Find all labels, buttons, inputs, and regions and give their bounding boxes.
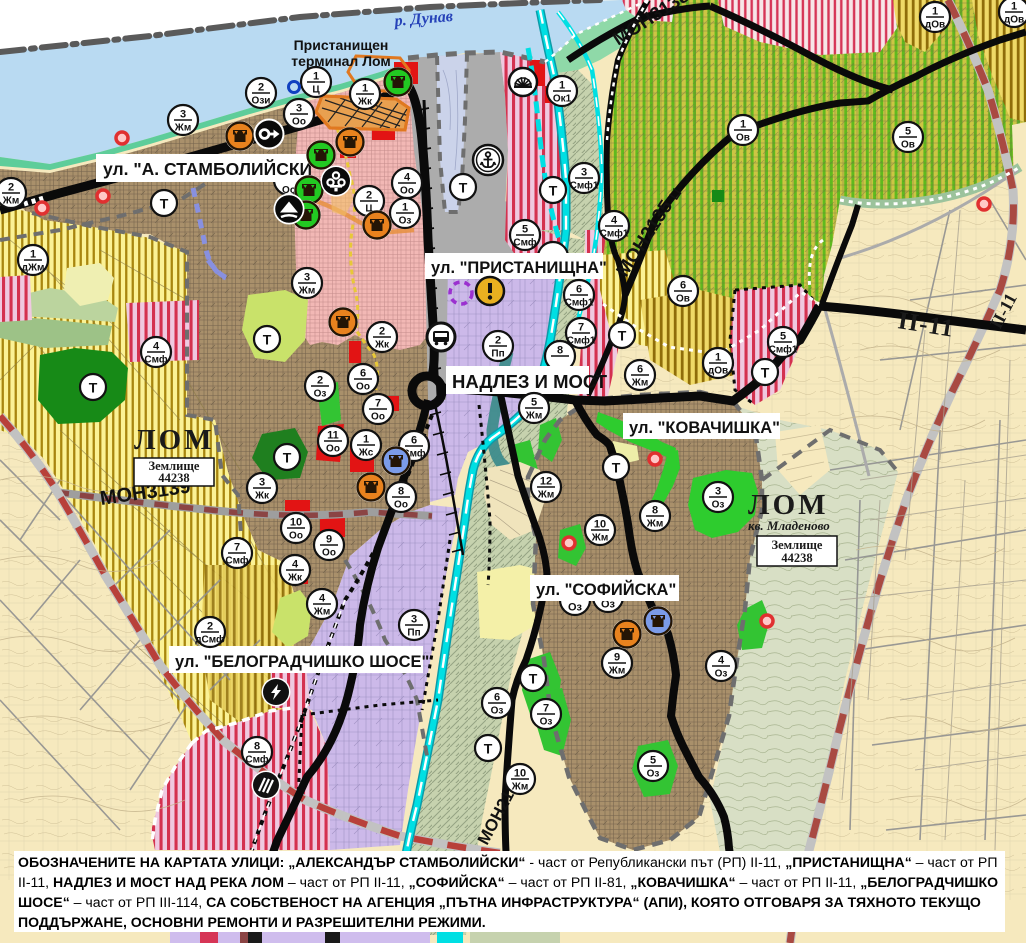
svg-text:3: 3 [259, 477, 265, 489]
svg-text:Жм: Жм [591, 533, 608, 544]
svg-text:Жм: Жм [2, 196, 19, 207]
svg-text:терминал Лом: терминал Лом [291, 53, 391, 69]
svg-text:Смф1: Смф1 [565, 297, 594, 309]
svg-text:7: 7 [375, 398, 381, 410]
svg-text:Т: Т [529, 671, 538, 687]
svg-text:ул. "ПРИСТАНИЩНА": ул. "ПРИСТАНИЩНА" [431, 259, 607, 277]
svg-text:Ок1: Ок1 [553, 94, 572, 105]
svg-text:2: 2 [366, 190, 372, 202]
svg-text:7: 7 [578, 322, 584, 334]
svg-text:Т: Т [283, 450, 292, 466]
svg-text:2: 2 [317, 375, 323, 387]
svg-text:Т: Т [612, 460, 621, 476]
svg-text:Оо: Оо [400, 186, 414, 197]
svg-text:10: 10 [594, 519, 606, 531]
svg-text:Т: Т [761, 365, 770, 381]
svg-text:ЛОМ: ЛОМ [748, 489, 829, 521]
svg-text:Оз: Оз [314, 389, 327, 400]
svg-text:Т: Т [618, 328, 627, 344]
svg-text:дЖм: дЖм [22, 263, 45, 274]
svg-text:Т: Т [484, 741, 493, 757]
svg-text:8: 8 [652, 505, 658, 517]
svg-text:Оо: Оо [371, 412, 385, 423]
svg-text:Т: Т [459, 180, 468, 196]
svg-text:9: 9 [326, 534, 332, 546]
svg-text:Оо: Оо [394, 500, 408, 511]
svg-text:2: 2 [379, 326, 385, 338]
svg-text:Ози: Ози [252, 96, 271, 107]
svg-text:1: 1 [362, 83, 368, 95]
svg-text:Жм: Жм [646, 519, 663, 530]
svg-text:12: 12 [540, 476, 552, 488]
svg-text:Жм: Жм [631, 378, 648, 389]
svg-text:Оз: Оз [647, 769, 660, 780]
svg-text:Т: Т [263, 332, 272, 348]
svg-text:4: 4 [718, 655, 725, 667]
svg-text:Оз: Оз [715, 669, 728, 680]
svg-text:4: 4 [292, 559, 299, 571]
svg-text:Оз: Оз [712, 500, 725, 511]
svg-text:2: 2 [495, 335, 501, 347]
svg-text:Т: Т [89, 380, 98, 396]
svg-text:2: 2 [258, 82, 264, 94]
svg-text:Жк: Жк [357, 97, 373, 108]
svg-text:Оз: Оз [540, 717, 553, 728]
svg-text:10: 10 [290, 517, 302, 529]
svg-text:Жм: Жм [608, 666, 625, 677]
svg-text:Смф: Смф [144, 354, 167, 366]
svg-text:Оо: Оо [322, 548, 336, 559]
svg-text:Смф: Смф [513, 237, 536, 249]
svg-text:Ов: Ов [676, 294, 690, 305]
svg-text:4: 4 [153, 341, 160, 353]
svg-text:Ов: Ов [736, 133, 750, 144]
svg-text:Жм: Жм [313, 607, 330, 618]
svg-text:Смф1: Смф1 [570, 180, 599, 192]
svg-text:Жк: Жк [374, 340, 390, 351]
svg-text:Смф1: Смф1 [600, 228, 629, 240]
svg-text:8: 8 [398, 486, 404, 498]
svg-text:6: 6 [576, 284, 582, 296]
svg-text:Оо: Оо [292, 117, 306, 128]
svg-text:1: 1 [30, 249, 36, 261]
svg-text:1: 1 [402, 202, 408, 214]
svg-text:Жм: Жм [525, 411, 542, 422]
svg-text:5: 5 [522, 224, 528, 236]
svg-text:Жм: Жм [298, 286, 315, 297]
svg-text:Землище: Землище [772, 538, 823, 552]
svg-text:дСмф: дСмф [195, 634, 225, 646]
svg-text:дОв: дОв [1004, 15, 1024, 26]
svg-text:Жм: Жм [537, 490, 554, 501]
svg-text:Ц: Ц [312, 85, 320, 96]
svg-text:Жк: Жк [254, 491, 270, 502]
svg-text:2: 2 [8, 182, 14, 194]
svg-text:ул. "А. СТАМБОЛИЙСКИ": ул. "А. СТАМБОЛИЙСКИ" [103, 158, 320, 179]
svg-text:44238: 44238 [781, 551, 812, 565]
svg-text:5: 5 [905, 126, 911, 138]
svg-text:дОв: дОв [925, 20, 945, 31]
svg-text:1: 1 [932, 6, 938, 18]
svg-text:1: 1 [715, 352, 721, 364]
svg-text:ул. "БЕЛОГРАДЧИШКО ШОСЕ": ул. "БЕЛОГРАДЧИШКО ШОСЕ" [175, 653, 429, 671]
svg-text:6: 6 [494, 692, 500, 704]
svg-text:5: 5 [531, 397, 537, 409]
svg-text:Жм: Жм [511, 782, 528, 793]
svg-text:3: 3 [581, 167, 587, 179]
svg-text:4: 4 [404, 172, 411, 184]
svg-text:8: 8 [557, 345, 563, 357]
svg-text:9: 9 [614, 652, 620, 664]
svg-text:3: 3 [715, 486, 721, 498]
svg-text:1: 1 [740, 119, 746, 131]
svg-text:Оо: Оо [356, 382, 370, 393]
svg-text:Пристанищен: Пристанищен [294, 37, 389, 53]
svg-text:6: 6 [411, 435, 417, 447]
svg-text:11: 11 [327, 430, 339, 442]
svg-text:6: 6 [680, 280, 686, 292]
svg-text:Смф: Смф [225, 555, 248, 567]
svg-text:Смф1: Смф1 [769, 344, 798, 356]
svg-text:2: 2 [207, 621, 213, 633]
svg-text:Т: Т [160, 196, 169, 212]
svg-text:1: 1 [559, 80, 565, 92]
svg-text:3: 3 [180, 109, 186, 121]
svg-text:3: 3 [411, 614, 417, 626]
svg-text:6: 6 [637, 364, 643, 376]
svg-text:Жм: Жм [174, 123, 191, 134]
svg-text:ул. "КОВАЧИШКА": ул. "КОВАЧИШКА" [629, 419, 780, 437]
svg-text:4: 4 [319, 593, 326, 605]
svg-text:Пп: Пп [407, 628, 420, 639]
svg-text:ЛОМ: ЛОМ [134, 424, 215, 456]
svg-text:дОв: дОв [708, 366, 728, 377]
svg-text:3: 3 [296, 103, 302, 115]
svg-text:3: 3 [304, 272, 310, 284]
svg-text:8: 8 [254, 741, 260, 753]
svg-text:Жс: Жс [358, 448, 374, 459]
svg-text:Оо: Оо [326, 444, 340, 455]
svg-text:1: 1 [313, 71, 319, 83]
svg-text:Смф: Смф [245, 754, 268, 766]
svg-text:Пп: Пп [491, 349, 504, 360]
svg-text:10: 10 [514, 768, 526, 780]
svg-text:Жк: Жк [287, 573, 303, 584]
svg-text:НАДЛЕЗ И МОСТ: НАДЛЕЗ И МОСТ [452, 371, 608, 392]
svg-text:Т: Т [549, 183, 558, 199]
svg-text:Оз: Оз [491, 706, 504, 717]
svg-text:Оз: Оз [399, 216, 412, 227]
svg-text:5: 5 [650, 755, 656, 767]
svg-text:6: 6 [360, 368, 366, 380]
svg-text:4: 4 [611, 215, 618, 227]
svg-text:7: 7 [234, 542, 240, 554]
svg-text:1: 1 [1011, 1, 1017, 13]
svg-text:Оз: Оз [568, 602, 583, 614]
svg-text:кв. Младеново: кв. Младеново [748, 518, 830, 533]
svg-text:5: 5 [780, 331, 786, 343]
svg-text:ул. "СОФИЙСКА": ул. "СОФИЙСКА" [536, 580, 676, 599]
svg-text:Ов: Ов [901, 140, 915, 151]
svg-text:Оо: Оо [289, 531, 303, 542]
svg-text:44238: 44238 [158, 471, 189, 485]
svg-text:7: 7 [543, 703, 549, 715]
svg-text:Смф1: Смф1 [567, 335, 596, 347]
svg-text:1: 1 [363, 434, 369, 446]
